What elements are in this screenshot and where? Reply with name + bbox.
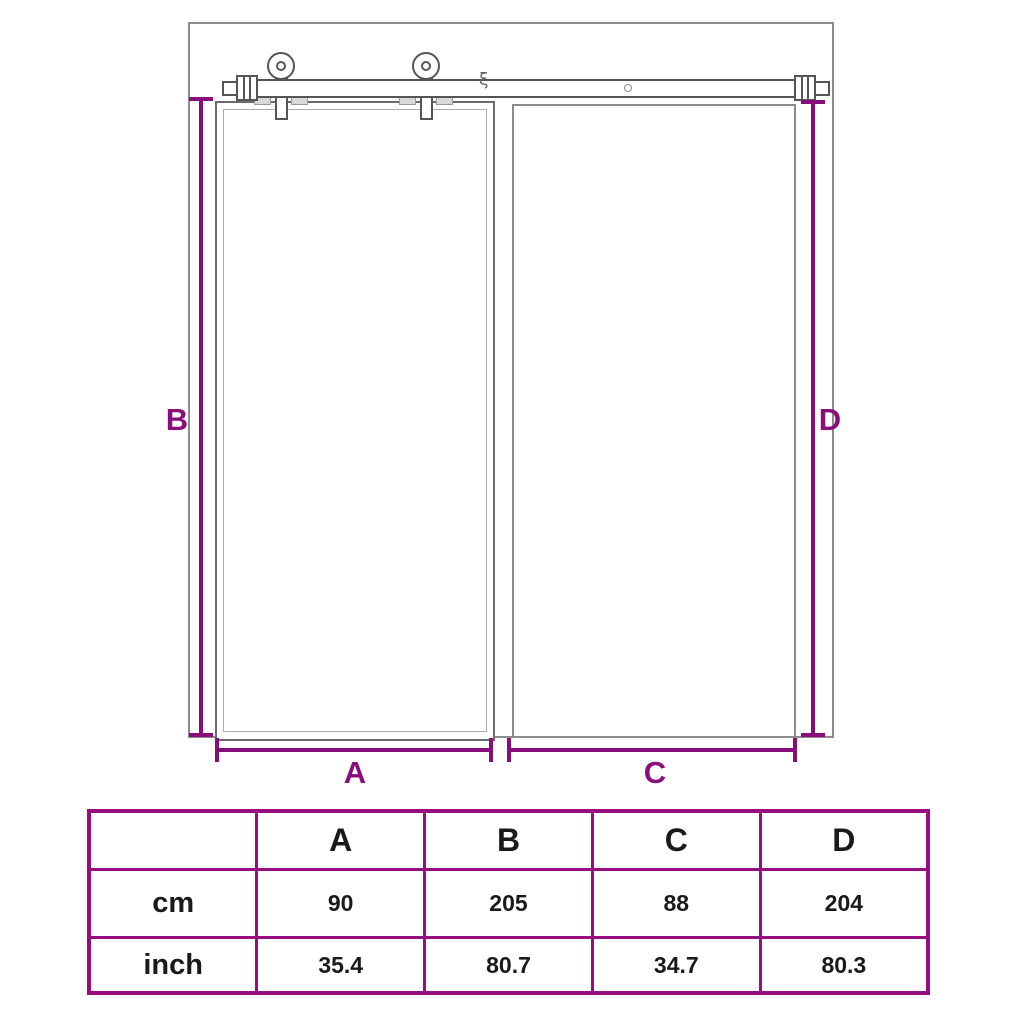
roller-hub (276, 61, 286, 71)
value-cm-b: 205 (425, 870, 593, 938)
table-header-b: B (425, 811, 593, 870)
rail-break-mark: ξ (479, 70, 488, 90)
door-panel (215, 101, 495, 741)
door-inner-frame (223, 109, 487, 732)
table-row-cm: cm 90 205 88 204 (89, 870, 928, 938)
value-cm-a: 90 (257, 870, 425, 938)
unit-label-cm: cm (89, 870, 257, 938)
value-cm-c: 88 (592, 870, 760, 938)
table-row-inch: inch 35.4 80.7 34.7 80.3 (89, 938, 928, 994)
dimension-c-tick-left (507, 738, 511, 762)
dimension-d-label: D (813, 400, 847, 438)
dimension-a-tick-right (489, 738, 493, 762)
table-header-row: A B C D (89, 811, 928, 870)
dimension-b-label: B (160, 400, 194, 438)
rail (252, 79, 798, 98)
mounting-pad (291, 97, 308, 105)
table-header-d: D (760, 811, 928, 870)
value-inch-a: 35.4 (257, 938, 425, 994)
unit-label-inch: inch (89, 938, 257, 994)
dimension-a-label: A (336, 754, 374, 790)
rail-screw-hole (624, 84, 632, 92)
dimension-d-tick-bottom (801, 733, 825, 737)
sliding-door-dimension-diagram: ξ B D A C A B C D cm 90 205 88 204 inch (0, 0, 1024, 1024)
dimension-c-tick-right (793, 738, 797, 762)
value-inch-c: 34.7 (592, 938, 760, 994)
table-header-a: A (257, 811, 425, 870)
dimension-c-label: C (636, 754, 674, 790)
value-inch-d: 80.3 (760, 938, 928, 994)
mounting-pad (436, 97, 453, 105)
dimensions-table: A B C D cm 90 205 88 204 inch 35.4 80.7 … (87, 809, 930, 995)
dimension-b-line (199, 99, 203, 737)
dimension-b-tick-top (189, 97, 213, 101)
dimension-b-tick-bottom (189, 733, 213, 737)
dimension-a-tick-left (215, 738, 219, 762)
dimension-c-line (509, 748, 797, 752)
table-header-empty (89, 811, 257, 870)
roller-hub (421, 61, 431, 71)
value-inch-b: 80.7 (425, 938, 593, 994)
mounting-pad (399, 97, 416, 105)
rail-end-cap-right-collar (794, 75, 816, 101)
door-opening (512, 104, 796, 738)
table-header-c: C (592, 811, 760, 870)
rail-end-cap-left-collar (236, 75, 258, 101)
value-cm-d: 204 (760, 870, 928, 938)
dimension-a-line (217, 748, 493, 752)
dimension-d-tick-top (801, 100, 825, 104)
rail-end-cap-right-knob (814, 81, 830, 96)
